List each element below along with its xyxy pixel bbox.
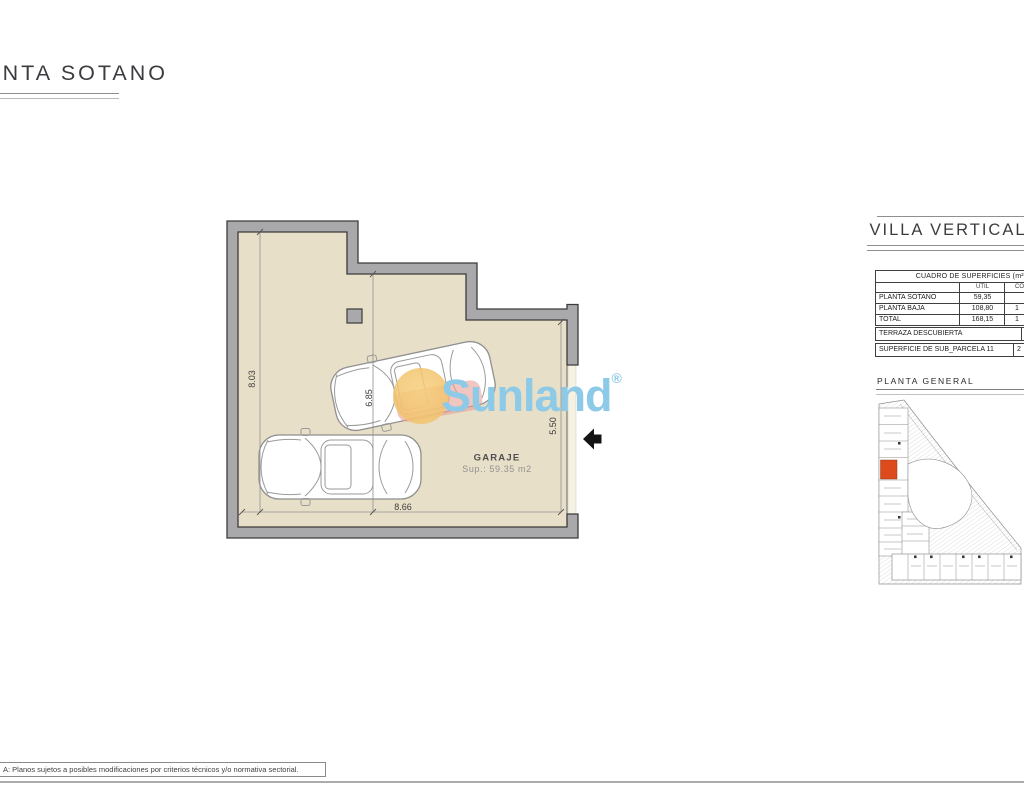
project-title-underline bbox=[867, 245, 1024, 251]
project-title: VILLA VERTICAL bbox=[868, 221, 1024, 240]
dim-inner-label: 6.85 bbox=[364, 389, 374, 407]
title-underline bbox=[0, 93, 119, 99]
sheet-bottom-line bbox=[0, 781, 1024, 783]
row-label: TOTAL bbox=[879, 315, 901, 325]
dim-left-label: 8.03 bbox=[247, 370, 257, 388]
col-util: UTIL bbox=[959, 283, 1005, 292]
highlighted-plot bbox=[881, 460, 898, 479]
table-row: PLANTA BAJA 108,80 1 bbox=[876, 304, 1024, 315]
column bbox=[347, 309, 362, 323]
site-map-title: PLANTA GENERAL bbox=[877, 376, 974, 386]
row-construida: 1 bbox=[1004, 304, 1024, 314]
parcela-label: SUPERFICIE DE SUB_PARCELA 11 bbox=[879, 344, 994, 356]
row-construida: 1 bbox=[1004, 315, 1024, 325]
row-label: PLANTA SOTANO bbox=[879, 293, 936, 303]
sunland-watermark: Sunland® bbox=[441, 370, 622, 422]
parcela-box: SUPERFICIE DE SUB_PARCELA 11 2 bbox=[875, 343, 1024, 357]
surfaces-table-title: CUADRO DE SUPERFICIES (m²) bbox=[876, 271, 1024, 283]
row-util: 108,80 bbox=[959, 304, 1005, 314]
panel-top-line bbox=[877, 216, 1024, 217]
surfaces-table: CUADRO DE SUPERFICIES (m²) UTIL CONSTRUI… bbox=[875, 270, 1024, 326]
parcela-value: 2 bbox=[1013, 344, 1024, 356]
registered-mark: ® bbox=[612, 370, 622, 386]
table-row: PLANTA SOTANO 59,35 bbox=[876, 293, 1024, 304]
car-bottom bbox=[259, 429, 421, 506]
row-construida bbox=[1004, 293, 1024, 303]
table-row: TOTAL 168,15 1 bbox=[876, 315, 1024, 325]
terraza-box: TERRAZA DESCUBIERTA bbox=[875, 327, 1024, 341]
row-util: 59,35 bbox=[959, 293, 1005, 303]
plot-strip-bottom bbox=[892, 554, 1021, 580]
site-map bbox=[874, 398, 1024, 588]
col-construida: CONSTRUIDA bbox=[1004, 283, 1024, 292]
row-util: 168,15 bbox=[959, 315, 1005, 325]
drawing-sheet: Sunland® 8.03 6.85 5.50 8.66 GARAJE Sup.… bbox=[0, 0, 1024, 800]
terraza-label: TERRAZA DESCUBIERTA bbox=[879, 328, 962, 340]
internal-road bbox=[908, 459, 972, 528]
page-title: PLANTA SOTANO bbox=[0, 61, 168, 86]
room-name-label: GARAJE bbox=[474, 453, 521, 464]
surfaces-table-columns: UTIL CONSTRUIDA bbox=[876, 283, 1024, 293]
dim-right-label: 5.50 bbox=[548, 417, 558, 435]
room-area-label: Sup.: 59.35 m2 bbox=[462, 464, 531, 474]
footer-disclaimer: A: Planos sujetos a posibles modificacio… bbox=[0, 762, 326, 777]
entrance-arrow-icon bbox=[583, 429, 602, 450]
watermark-brand-text: Sunland bbox=[441, 370, 612, 421]
row-label: PLANTA BAJA bbox=[879, 304, 925, 314]
dim-bottom-label: 8.66 bbox=[394, 502, 412, 512]
site-map-underline bbox=[876, 389, 1024, 395]
